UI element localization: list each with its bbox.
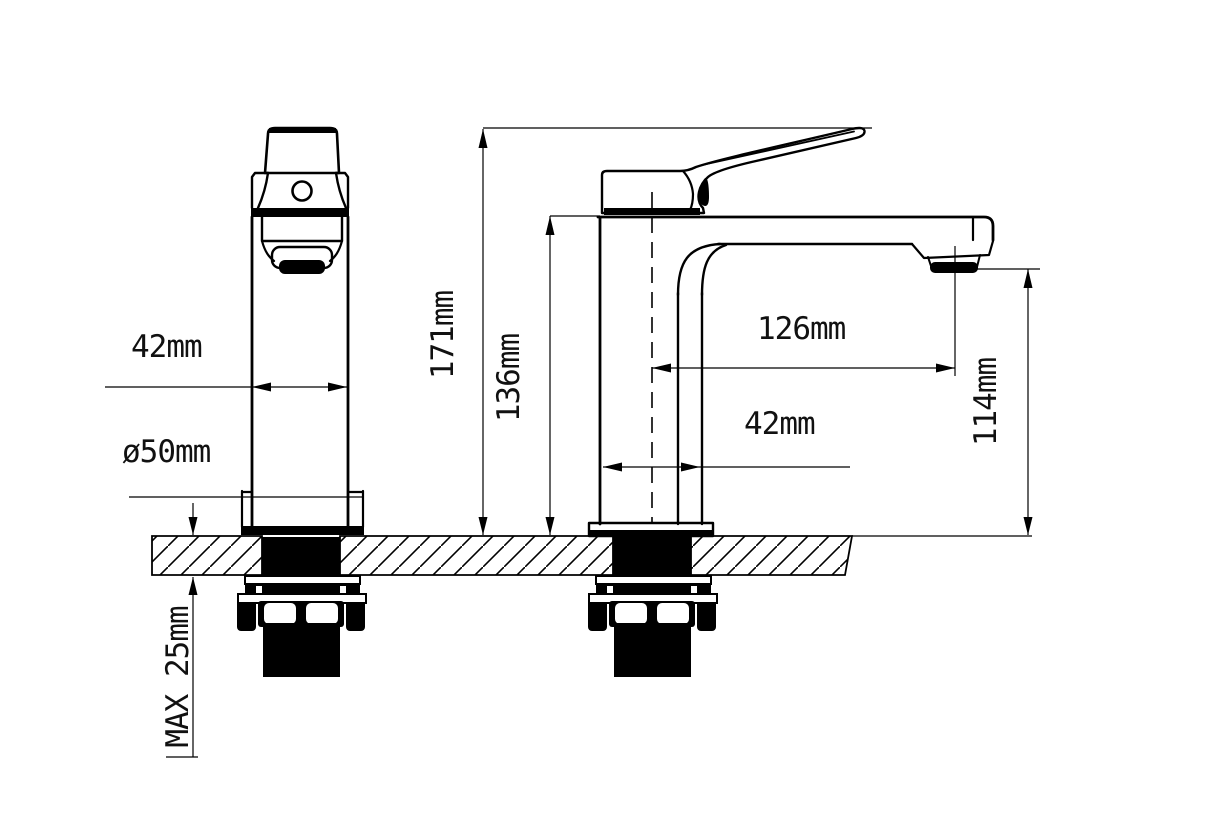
dimension-42mm-side: 42mm: [603, 406, 850, 472]
threaded-tail: [614, 623, 691, 677]
base-flange-bottom: [241, 526, 364, 535]
dim-label-total-height: 171mm: [425, 291, 461, 380]
dim-label-max-thickness: MAX 25mm: [160, 606, 196, 748]
dim-label-base-diameter: ø50mm: [122, 434, 211, 470]
counter-segment-left: [152, 536, 262, 575]
dim-label-outlet-height: 114mm: [968, 358, 1004, 447]
threaded-tail: [263, 623, 340, 677]
aerator-outlet: [930, 262, 978, 273]
technical-drawing: 42mm ø50mm 171mm 136mm 126mm 42mm: [0, 0, 1207, 839]
lever-top-facet-line: [702, 132, 854, 166]
spacer-slot: [691, 586, 697, 593]
hex-nut: [615, 603, 647, 624]
technical-drawing-page: 42mm ø50mm 171mm 136mm 126mm 42mm: [0, 0, 1207, 839]
threaded-shank-through-counter: [613, 537, 691, 576]
dimension-126mm: 126mm: [652, 246, 955, 376]
body-collar: [262, 217, 342, 241]
handle-body-junction: [251, 208, 349, 217]
body-spout-top-edge: [598, 217, 993, 240]
spacer-slot: [340, 586, 346, 593]
counter-segment-middle: [340, 536, 613, 575]
spacer-slot: [607, 586, 613, 593]
base-flange-bottom: [589, 530, 713, 537]
handle-neck-curve: [683, 171, 693, 210]
spout-fillet-inner: [702, 245, 726, 295]
dimension-114mm: 114mm: [968, 269, 1040, 535]
dimension-diameter-50mm: ø50mm: [122, 434, 363, 497]
dim-label-spout-reach: 126mm: [757, 311, 846, 347]
aerator-front: [279, 260, 325, 274]
escutcheon-neck-right: [336, 173, 346, 208]
lever-hook-shadow: [699, 178, 709, 206]
counter-segment-right: [691, 536, 852, 575]
hex-nut: [264, 603, 296, 624]
faucet-front-view: [241, 128, 364, 535]
handle-lever: [602, 128, 865, 213]
handle-indicator-hole: [293, 182, 312, 201]
escutcheon-neck-left: [258, 173, 268, 208]
dim-label-body-depth: 42mm: [744, 406, 815, 442]
hex-nut: [306, 603, 338, 624]
handle-end-view: [265, 128, 339, 173]
washer: [596, 576, 711, 584]
hex-nut: [657, 603, 689, 624]
dim-label-spout-top-height: 136mm: [491, 334, 527, 423]
dimension-42mm-front: 42mm: [105, 329, 347, 392]
spacer-slot: [256, 586, 262, 593]
dim-label-front-width: 42mm: [131, 329, 202, 365]
threaded-shank-through-counter: [262, 537, 340, 576]
handle-body-junction: [604, 208, 700, 215]
washer: [245, 576, 360, 584]
dimension-136mm: 136mm: [491, 216, 600, 535]
